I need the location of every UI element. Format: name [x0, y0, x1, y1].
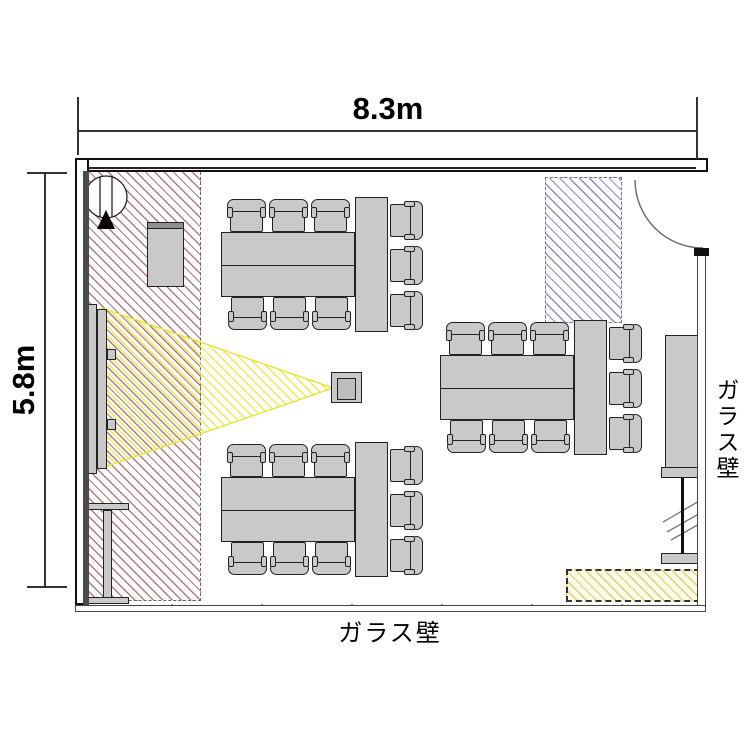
- chair: [608, 324, 642, 364]
- chair-back: [227, 444, 266, 457]
- chair: [269, 541, 309, 575]
- projector-lens: [337, 378, 356, 400]
- chair-back: [311, 444, 350, 457]
- chair: [269, 296, 309, 330]
- chair-back: [410, 536, 423, 575]
- chair-back: [269, 444, 308, 457]
- chair: [311, 541, 351, 575]
- top-wall-inner-line: [80, 167, 696, 169]
- chair-back: [228, 562, 267, 575]
- left-wall-stripe: [83, 171, 89, 605]
- floor-plan: 8.3m 5.8m: [0, 0, 750, 750]
- dimension-tick: [27, 172, 67, 174]
- partition-pole: [681, 478, 684, 554]
- chair: [269, 444, 309, 478]
- chair: [227, 444, 267, 478]
- projection-screen-bar-outer: [88, 304, 97, 474]
- chair-back: [410, 446, 423, 485]
- cabinet-top-left-strip: [147, 222, 184, 229]
- width-dimension-label: 8.3m: [288, 90, 488, 128]
- dimension-tick: [696, 97, 698, 159]
- dimension-tick: [27, 586, 67, 588]
- chair: [389, 536, 423, 576]
- meeting-table-group-top-left-end-table: [355, 197, 388, 332]
- chair-back: [488, 322, 527, 335]
- meeting-table-group-right-end-table: [574, 320, 607, 455]
- chair-back: [270, 317, 309, 330]
- chair-back: [531, 440, 570, 453]
- chair-back: [530, 322, 569, 335]
- side-table-base: [83, 597, 129, 604]
- meeting-table-group-top-left: [221, 232, 355, 297]
- chair: [311, 444, 351, 478]
- chair: [446, 419, 486, 453]
- chair: [488, 322, 528, 356]
- chair: [608, 369, 642, 409]
- projection-screen-bar-inner: [97, 309, 107, 469]
- chair-back: [312, 317, 351, 330]
- screen-bracket-lower: [107, 419, 116, 430]
- chair: [608, 414, 642, 454]
- top-wall: [75, 158, 708, 172]
- chair: [227, 296, 267, 330]
- chair: [227, 541, 267, 575]
- chair-back: [410, 201, 423, 240]
- chair-back: [447, 440, 486, 453]
- dimension-tick: [77, 97, 79, 155]
- chair: [389, 246, 423, 286]
- door-hinge-cap: [694, 248, 709, 256]
- chair-back: [489, 440, 528, 453]
- chair: [311, 296, 351, 330]
- partition-foot-upper: [661, 467, 702, 478]
- chair-back: [227, 199, 266, 212]
- chair-back: [446, 322, 485, 335]
- chair-back: [269, 199, 308, 212]
- bottom-glass-wall: [75, 605, 706, 612]
- meeting-table-group-bottom-left-end-table: [355, 442, 388, 577]
- screen-bracket-upper: [107, 349, 116, 360]
- chair-back: [410, 246, 423, 285]
- chair: [389, 446, 423, 486]
- width-dimension-line: [78, 130, 698, 132]
- chair-back: [410, 291, 423, 330]
- chair: [389, 291, 423, 331]
- side-table-stem: [103, 510, 112, 598]
- chair-back: [629, 324, 642, 363]
- chair: [227, 199, 267, 233]
- right-glass-wall: [697, 249, 706, 612]
- chair: [389, 201, 423, 241]
- chair-back: [629, 414, 642, 453]
- glass-wall-label-right: ガラス壁: [709, 378, 743, 482]
- chair: [530, 419, 570, 453]
- glass-wall-label-bottom: ガラス壁: [290, 613, 490, 648]
- chair: [488, 419, 528, 453]
- meeting-table-group-right: [440, 355, 574, 420]
- chair-back: [410, 491, 423, 530]
- chair: [311, 199, 351, 233]
- chair: [530, 322, 570, 356]
- height-dimension-line: [44, 173, 46, 587]
- chair-back: [629, 369, 642, 408]
- chair-back: [228, 317, 267, 330]
- chair-back: [311, 199, 350, 212]
- chair: [269, 199, 309, 233]
- chair: [446, 322, 486, 356]
- height-dimension-label: 5.8m: [6, 292, 42, 468]
- chair-back: [270, 562, 309, 575]
- cabinet-right: [665, 335, 700, 477]
- side-table-top: [85, 503, 129, 510]
- chair: [389, 491, 423, 531]
- chair-back: [312, 562, 351, 575]
- partition-foot-lower: [661, 553, 702, 564]
- meeting-table-group-bottom-left: [221, 477, 355, 542]
- cabinet-top-left: [147, 222, 184, 287]
